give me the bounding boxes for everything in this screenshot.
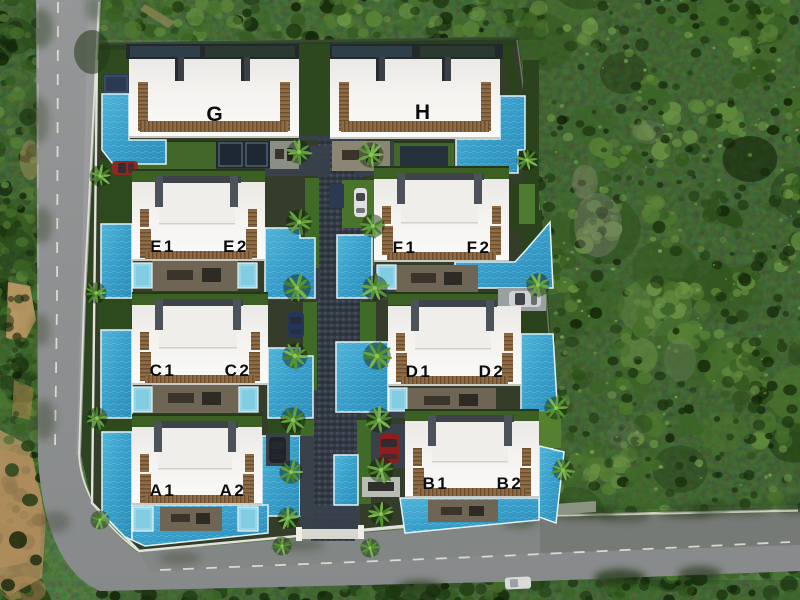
svg-text:C2: C2 — [225, 361, 252, 380]
svg-text:E1: E1 — [150, 237, 176, 256]
svg-text:D2: D2 — [479, 362, 506, 381]
svg-text:D1: D1 — [406, 362, 433, 381]
svg-text:E2: E2 — [223, 237, 249, 256]
svg-text:G: G — [206, 103, 223, 126]
svg-text:F2: F2 — [467, 238, 492, 257]
svg-text:C1: C1 — [150, 361, 177, 380]
svg-text:B1: B1 — [423, 474, 450, 493]
svg-text:A2: A2 — [220, 481, 247, 500]
svg-text:F1: F1 — [393, 238, 418, 257]
svg-text:B2: B2 — [497, 474, 524, 493]
svg-text:H: H — [415, 101, 431, 124]
svg-text:A1: A1 — [150, 481, 177, 500]
